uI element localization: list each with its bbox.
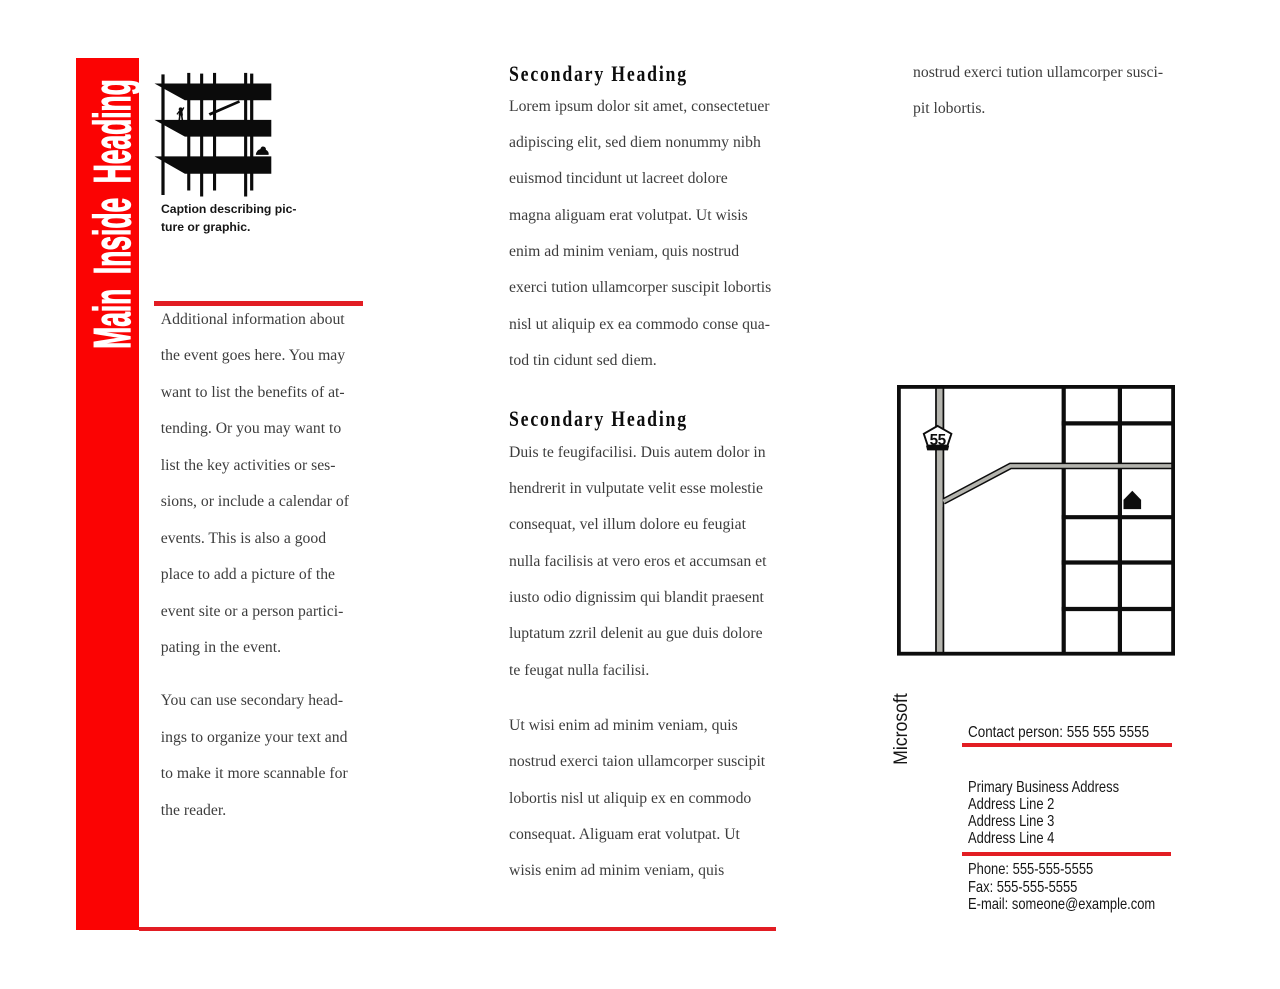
svg-text:55: 55 xyxy=(929,432,946,449)
